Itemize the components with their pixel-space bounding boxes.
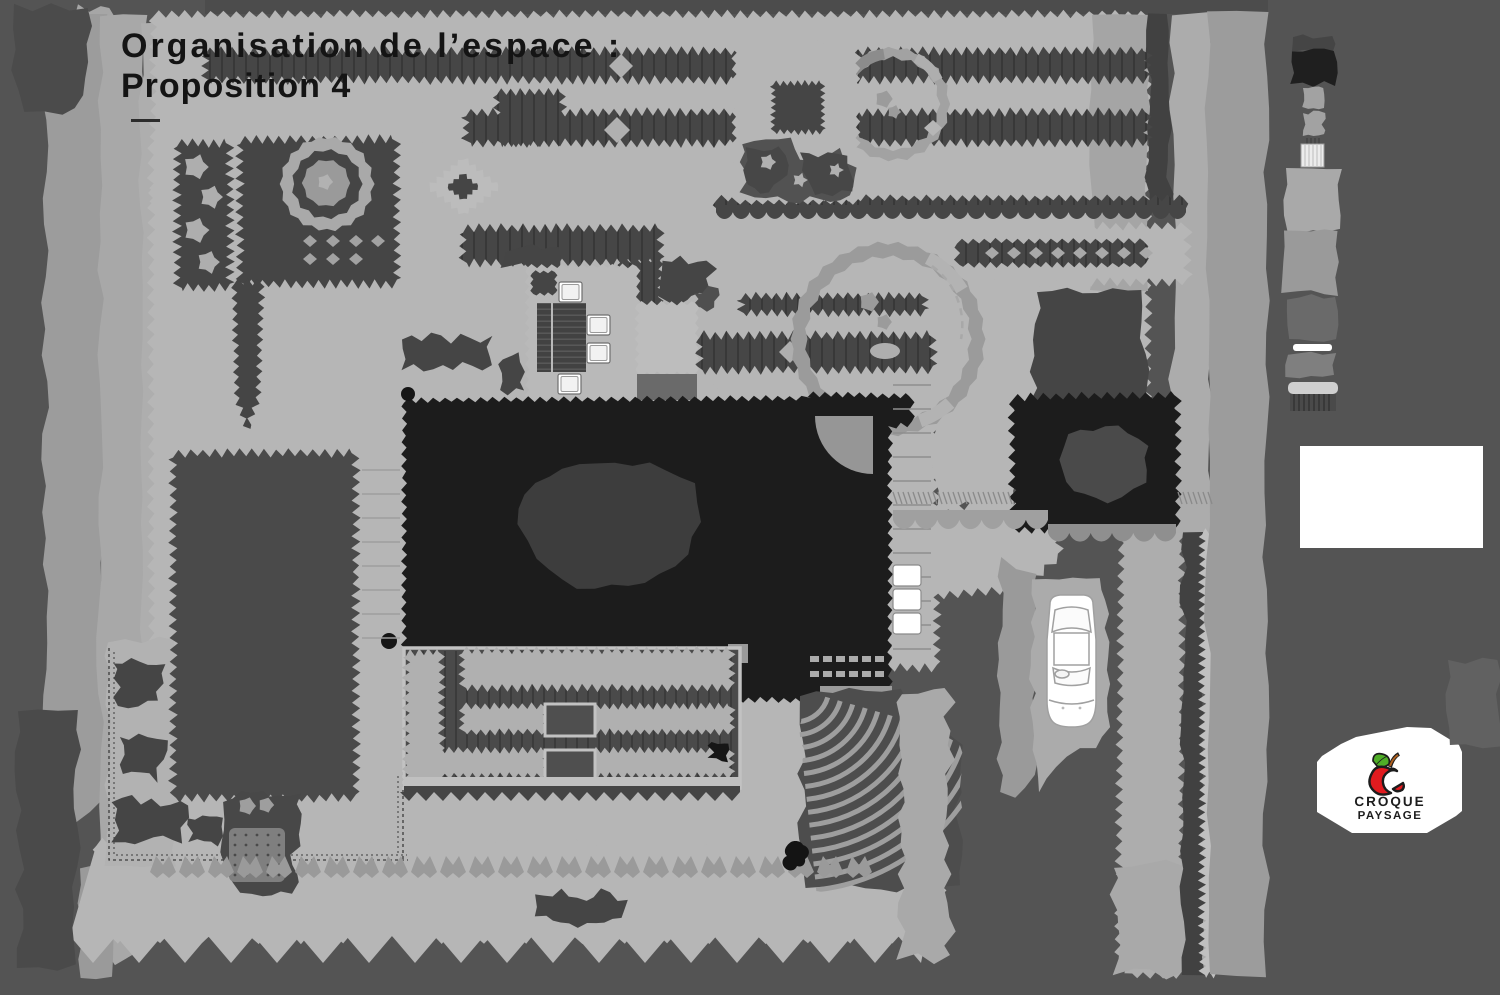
svg-text:PAYSAGE: PAYSAGE	[1358, 810, 1423, 822]
svg-text:CROQUE: CROQUE	[1354, 794, 1425, 809]
svg-text:Proposition 4: Proposition 4	[121, 67, 351, 105]
svg-text:Organisation de l’espace :: Organisation de l’espace :	[121, 27, 622, 65]
